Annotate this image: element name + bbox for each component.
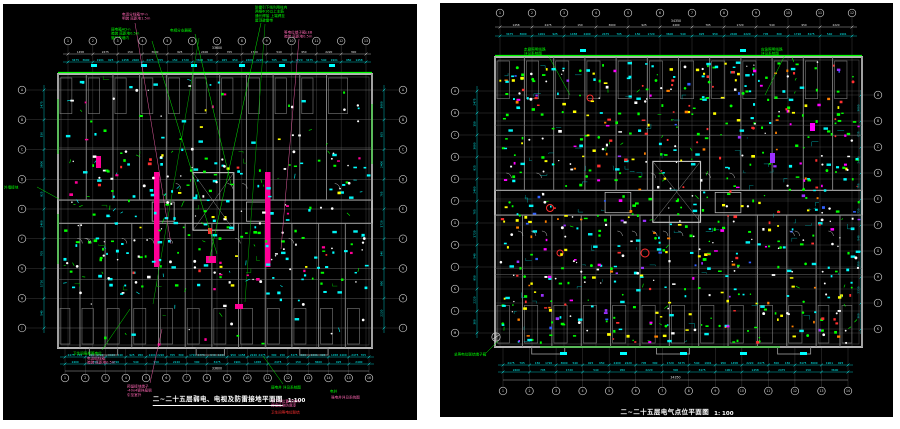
svg-text:1901: 1901 (331, 58, 338, 62)
svg-text:2400: 2400 (672, 23, 679, 27)
svg-text:2220: 2220 (832, 23, 839, 27)
annotation-text: 电话分线箱TP-n (122, 11, 148, 16)
svg-text:2220: 2220 (743, 32, 750, 36)
svg-text:950: 950 (232, 58, 238, 62)
svg-text:1458: 1458 (752, 368, 759, 372)
svg-text:3475: 3475 (72, 58, 79, 62)
svg-text:3600: 3600 (831, 368, 838, 372)
svg-text:2475: 2475 (473, 98, 477, 105)
svg-text:15: 15 (347, 376, 351, 380)
svg-text:1720: 1720 (473, 230, 477, 237)
svg-text:150: 150 (295, 360, 301, 364)
svg-text:925: 925 (336, 360, 342, 364)
svg-text:4: 4 (582, 389, 584, 393)
svg-text:540: 540 (380, 251, 384, 257)
svg-text:705: 705 (540, 368, 546, 372)
svg-text:2475: 2475 (274, 360, 281, 364)
svg-text:6: 6 (659, 11, 661, 15)
svg-text:3600: 3600 (380, 101, 384, 108)
svg-text:950: 950 (380, 280, 384, 286)
svg-text:1458: 1458 (355, 58, 362, 62)
svg-text:540: 540 (769, 23, 775, 27)
svg-text:2: 2 (529, 389, 531, 393)
svg-text:3475: 3475 (506, 32, 513, 36)
svg-text:950: 950 (620, 368, 626, 372)
svg-text:3475: 3475 (306, 58, 313, 62)
svg-text:705: 705 (616, 32, 622, 36)
svg-text:7: 7 (186, 376, 188, 380)
svg-text:2400: 2400 (730, 32, 737, 36)
svg-text:2220: 2220 (250, 353, 257, 357)
svg-text:950: 950 (301, 50, 307, 54)
cad-drawing-left: 1458247515036009252400705172054095022203… (3, 4, 417, 420)
svg-text:705: 705 (519, 361, 525, 365)
svg-text:540: 540 (133, 360, 139, 364)
svg-text:300: 300 (776, 32, 782, 36)
svg-text:9: 9 (755, 11, 757, 15)
svg-text:3475: 3475 (807, 32, 814, 36)
annotation-text: 电话组线箱 (87, 355, 105, 360)
svg-text:705: 705 (227, 50, 233, 54)
svg-text:925: 925 (129, 353, 135, 357)
svg-text:3600: 3600 (560, 361, 567, 365)
svg-text:2475: 2475 (507, 361, 514, 365)
svg-text:2220: 2220 (325, 50, 332, 54)
svg-text:3600: 3600 (473, 142, 477, 149)
svg-text:2400: 2400 (583, 32, 590, 36)
svg-text:705: 705 (705, 23, 711, 27)
svg-text:1720: 1720 (182, 58, 189, 62)
svg-text:2475: 2475 (40, 101, 44, 108)
svg-text:7: 7 (216, 39, 218, 43)
svg-text:10: 10 (740, 389, 744, 393)
svg-text:11: 11 (766, 389, 770, 393)
svg-text:L: L (454, 309, 456, 313)
svg-text:950: 950 (801, 23, 807, 27)
title-right: 二~二十五层电气点位平面图1: 100 (620, 401, 733, 417)
annotation-text: 走廊照明线路 (524, 46, 546, 51)
svg-text:J: J (877, 301, 879, 305)
svg-text:1458: 1458 (731, 361, 738, 365)
svg-text:1: 1 (67, 39, 69, 43)
svg-text:1720: 1720 (189, 353, 196, 357)
annotation-text: 两根Φ16以上主筋 (255, 9, 284, 14)
svg-text:705: 705 (473, 209, 477, 215)
svg-text:F: F (402, 237, 404, 241)
svg-text:925: 925 (699, 32, 705, 36)
annotation-text: 强电井详见系统图 (331, 394, 360, 399)
svg-text:3: 3 (563, 11, 565, 15)
annotation-text: 暗装 底距地0.5m (284, 34, 313, 39)
svg-text:M: M (454, 331, 457, 335)
svg-text:300: 300 (652, 361, 658, 365)
svg-text:925: 925 (552, 32, 558, 36)
svg-text:950: 950 (599, 361, 605, 365)
svg-text:13: 13 (364, 39, 368, 43)
svg-text:2220: 2220 (173, 360, 180, 364)
svg-text:2220: 2220 (625, 361, 632, 365)
svg-text:2475: 2475 (102, 50, 109, 54)
svg-text:1720: 1720 (667, 361, 674, 365)
svg-text:950: 950 (138, 353, 144, 357)
svg-text:E: E (877, 197, 879, 201)
svg-text:10: 10 (786, 11, 790, 15)
svg-text:12: 12 (850, 11, 854, 15)
svg-text:925: 925 (473, 165, 477, 171)
svg-text:9: 9 (714, 389, 716, 393)
svg-text:705: 705 (40, 251, 44, 257)
title-right-scale: 1: 100 (714, 411, 733, 417)
svg-text:11: 11 (266, 376, 270, 380)
annotation-text: 详见系统图 (761, 51, 779, 56)
svg-text:300: 300 (178, 353, 184, 357)
svg-text:10: 10 (245, 376, 249, 380)
title-right-text: 二~二十五层电气点位平面图 (620, 408, 709, 419)
svg-text:2: 2 (84, 376, 86, 380)
svg-text:705: 705 (641, 361, 647, 365)
svg-text:3600: 3600 (608, 23, 615, 27)
viewport-right: 1458247515036009252400705172054095022203… (440, 3, 893, 417)
svg-text:950: 950 (346, 58, 352, 62)
svg-text:E: E (21, 207, 23, 211)
svg-text:2220: 2220 (473, 296, 477, 303)
annotation-text: 防雷引下线利用柱内 (255, 4, 288, 9)
svg-text:B: B (402, 118, 404, 122)
svg-text:8: 8 (206, 376, 208, 380)
svg-text:3: 3 (105, 376, 107, 380)
svg-text:150: 150 (785, 361, 791, 365)
svg-text:150: 150 (280, 353, 286, 357)
svg-text:3475: 3475 (290, 353, 297, 357)
svg-text:16: 16 (367, 376, 371, 380)
svg-text:F: F (454, 199, 456, 203)
title-left: 二~二十五层弱电、电视及防雷接地平面图1:100 (153, 388, 306, 404)
svg-text:2220: 2220 (645, 368, 652, 372)
svg-text:12: 12 (339, 39, 343, 43)
svg-text:5: 5 (608, 389, 610, 393)
svg-text:2400: 2400 (149, 353, 156, 357)
svg-text:925: 925 (380, 132, 384, 138)
svg-text:10: 10 (290, 39, 294, 43)
svg-text:1901: 1901 (704, 361, 711, 365)
svg-text:2475: 2475 (757, 361, 764, 365)
svg-text:1720: 1720 (40, 280, 44, 287)
svg-text:2400: 2400 (513, 368, 520, 372)
svg-text:1901: 1901 (234, 360, 241, 364)
svg-text:1901: 1901 (97, 58, 104, 62)
svg-text:300: 300 (473, 319, 477, 325)
svg-text:11: 11 (314, 39, 318, 43)
svg-text:540: 540 (857, 235, 861, 241)
svg-text:2475: 2475 (258, 353, 265, 357)
svg-text:4: 4 (125, 376, 127, 380)
title-left-text: 二~二十五层弱电、电视及防雷接地平面图 (153, 395, 283, 406)
svg-text:5: 5 (627, 11, 629, 15)
svg-text:150: 150 (577, 23, 583, 27)
svg-text:150: 150 (172, 58, 178, 62)
annotation-text: 电视分支器箱 (170, 27, 192, 32)
svg-text:950: 950 (712, 32, 718, 36)
svg-text:2400: 2400 (473, 186, 477, 193)
svg-text:E: E (454, 177, 456, 181)
svg-text:E: E (402, 207, 404, 211)
svg-text:1458: 1458 (570, 32, 577, 36)
svg-text:6: 6 (165, 376, 167, 380)
svg-text:925: 925 (40, 191, 44, 197)
svg-text:925: 925 (588, 361, 594, 365)
svg-text:1720: 1720 (736, 23, 743, 27)
svg-text:C: C (454, 133, 456, 137)
svg-text:J: J (454, 265, 456, 269)
svg-text:3475: 3475 (698, 368, 705, 372)
svg-text:9: 9 (266, 39, 268, 43)
svg-text:5: 5 (145, 376, 147, 380)
svg-text:2400: 2400 (355, 360, 362, 364)
svg-text:705: 705 (361, 353, 367, 357)
svg-text:1458: 1458 (122, 58, 129, 62)
svg-text:1901: 1901 (839, 32, 846, 36)
svg-text:1720: 1720 (647, 32, 654, 36)
annotation-text: -40x4镀锌扁钢 (127, 388, 152, 393)
svg-text:540: 540 (40, 310, 44, 316)
svg-text:2475: 2475 (544, 23, 551, 27)
svg-text:2475: 2475 (602, 32, 609, 36)
annotation-text: 电井 (330, 388, 338, 393)
svg-text:12: 12 (286, 376, 290, 380)
svg-text:1720: 1720 (794, 32, 801, 36)
svg-text:950: 950 (473, 275, 477, 281)
svg-text:1720: 1720 (380, 220, 384, 227)
svg-text:2400: 2400 (40, 220, 44, 227)
svg-text:1458: 1458 (512, 23, 519, 27)
svg-text:300: 300 (271, 353, 277, 357)
svg-text:8: 8 (688, 389, 690, 393)
annotation-text: 明装 底距地1.5m (122, 16, 151, 21)
svg-text:2475: 2475 (351, 353, 358, 357)
svg-text:13: 13 (819, 389, 823, 393)
svg-text:540: 540 (680, 32, 686, 36)
svg-text:3600: 3600 (519, 32, 526, 36)
svg-text:300: 300 (857, 313, 861, 319)
svg-text:2: 2 (531, 11, 533, 15)
svg-text:1458: 1458 (238, 353, 245, 357)
annotation-text: 屋顶避雷带 (255, 17, 273, 22)
annotation-text: 暗装 底距地0.5m (87, 360, 116, 365)
svg-text:B: B (454, 111, 456, 115)
svg-text:1458: 1458 (77, 50, 84, 54)
svg-text:2400: 2400 (132, 58, 139, 62)
svg-text:2220: 2220 (746, 361, 753, 365)
annotation-text: 预留接地端子 (127, 383, 149, 388)
annotation-text: 详见系统图 (524, 51, 542, 56)
svg-text:1458: 1458 (254, 360, 261, 364)
svg-text:950: 950 (857, 261, 861, 267)
svg-text:2220: 2220 (157, 353, 164, 357)
svg-text:1720: 1720 (545, 361, 552, 365)
annotation-text: 总等电位联结端子箱 (454, 351, 487, 356)
svg-text:2475: 2475 (778, 368, 785, 372)
svg-text:3: 3 (555, 389, 557, 393)
annotation-text: 卫生间等电位联结 (271, 409, 300, 414)
svg-text:540: 540 (827, 32, 833, 36)
svg-text:6: 6 (635, 389, 637, 393)
svg-text:3600: 3600 (315, 360, 322, 364)
svg-text:950: 950 (231, 353, 237, 357)
svg-text:540: 540 (276, 50, 282, 54)
annotation-text: 通长焊接 上端焊至 (255, 13, 285, 18)
svg-text:3600: 3600 (82, 58, 89, 62)
svg-text:F: F (21, 237, 23, 241)
svg-text:540: 540 (207, 58, 213, 62)
svg-text:J: J (21, 326, 23, 330)
svg-text:1720: 1720 (295, 58, 302, 62)
svg-text:3600: 3600 (196, 58, 203, 62)
annotation-text: 外墙接地 (4, 184, 19, 189)
svg-text:1: 1 (499, 11, 501, 15)
svg-text:33600: 33600 (212, 46, 222, 50)
svg-text:4: 4 (142, 39, 144, 43)
svg-text:540: 540 (573, 361, 579, 365)
svg-text:540: 540 (694, 361, 700, 365)
svg-text:150: 150 (635, 32, 641, 36)
svg-text:540: 540 (593, 368, 599, 372)
annotation-text: 引至室外 (127, 392, 142, 397)
svg-text:925: 925 (641, 23, 647, 27)
svg-text:B: B (877, 119, 879, 123)
svg-text:6: 6 (191, 39, 193, 43)
annotation-text: 应急照明线路 (761, 46, 783, 51)
svg-text:1: 1 (64, 376, 66, 380)
svg-text:705: 705 (170, 353, 176, 357)
svg-text:925: 925 (222, 58, 228, 62)
svg-text:12: 12 (793, 389, 797, 393)
title-left-scale: 1:100 (288, 398, 306, 404)
svg-text:14: 14 (326, 376, 330, 380)
svg-text:13: 13 (306, 376, 310, 380)
svg-text:2: 2 (92, 39, 94, 43)
svg-text:300: 300 (282, 58, 288, 62)
svg-text:3600: 3600 (40, 161, 44, 168)
svg-text:8: 8 (241, 39, 243, 43)
svg-text:4: 4 (595, 11, 597, 15)
svg-text:14: 14 (846, 389, 850, 393)
svg-text:300: 300 (194, 360, 200, 364)
viewport-left: 1458247515036009252400705172054095022203… (3, 4, 417, 420)
svg-text:705: 705 (380, 191, 384, 197)
sheet-background: 1458247515036009252400705172054095022203… (0, 0, 900, 429)
svg-text:150: 150 (40, 132, 44, 138)
svg-text:925: 925 (838, 361, 844, 365)
svg-text:34350: 34350 (670, 376, 680, 380)
svg-text:2400: 2400 (614, 361, 621, 365)
svg-text:2220: 2220 (857, 286, 861, 293)
svg-text:705: 705 (763, 32, 769, 36)
svg-text:C: C (402, 148, 404, 152)
annotation-text: 等电位端子箱LEB (284, 29, 313, 34)
svg-text:3475: 3475 (799, 361, 806, 365)
svg-text:2400: 2400 (380, 161, 384, 168)
svg-text:F: F (877, 223, 879, 227)
svg-text:7: 7 (691, 11, 693, 15)
svg-text:7: 7 (661, 389, 663, 393)
svg-text:3600: 3600 (810, 361, 817, 365)
svg-text:1901: 1901 (725, 368, 732, 372)
svg-text:8: 8 (723, 11, 725, 15)
svg-text:300: 300 (774, 361, 780, 365)
svg-text:2475: 2475 (146, 58, 153, 62)
svg-text:2400: 2400 (246, 58, 253, 62)
svg-text:2220: 2220 (380, 309, 384, 316)
svg-text:300: 300 (673, 368, 679, 372)
svg-text:B: B (21, 118, 23, 122)
svg-text:950: 950 (721, 361, 727, 365)
svg-text:C: C (21, 148, 23, 152)
svg-text:150: 150 (806, 368, 812, 372)
cad-drawing-right: 1458247515036009252400705172054095022203… (440, 3, 893, 417)
svg-text:1901: 1901 (826, 361, 833, 365)
svg-text:540: 540 (321, 58, 327, 62)
svg-text:3475: 3475 (678, 361, 685, 365)
svg-text:34350: 34350 (671, 19, 681, 23)
svg-text:705: 705 (158, 58, 164, 62)
svg-text:5: 5 (166, 39, 168, 43)
svg-text:925: 925 (177, 50, 183, 54)
svg-text:150: 150 (473, 121, 477, 127)
svg-text:540: 540 (473, 253, 477, 259)
svg-text:1: 1 (502, 389, 504, 393)
svg-text:150: 150 (127, 50, 133, 54)
svg-text:C: C (877, 145, 879, 149)
annotation-text: 卫生间局部等电位 (73, 350, 102, 355)
svg-text:2400: 2400 (72, 360, 79, 364)
svg-text:3600: 3600 (666, 32, 673, 36)
svg-text:925: 925 (108, 58, 114, 62)
svg-text:925: 925 (857, 131, 861, 137)
svg-text:2400: 2400 (339, 353, 346, 357)
svg-text:3600: 3600 (857, 104, 861, 111)
svg-text:2400: 2400 (201, 50, 208, 54)
svg-text:300: 300 (351, 50, 357, 54)
svg-text:1720: 1720 (566, 368, 573, 372)
annotation-text: 弱电箱AD-n (111, 26, 131, 31)
svg-text:3475: 3475 (213, 360, 220, 364)
svg-text:1901: 1901 (538, 32, 545, 36)
svg-text:33600: 33600 (212, 367, 222, 371)
svg-text:1458: 1458 (331, 353, 338, 357)
svg-text:11: 11 (818, 11, 822, 15)
annotation-text: 暗装 底距地0.5m (111, 31, 140, 36)
svg-text:J: J (402, 326, 404, 330)
svg-text:9: 9 (226, 376, 228, 380)
svg-text:150: 150 (535, 361, 541, 365)
svg-text:540: 540 (117, 353, 123, 357)
svg-text:705: 705 (271, 58, 277, 62)
svg-text:3: 3 (117, 39, 119, 43)
